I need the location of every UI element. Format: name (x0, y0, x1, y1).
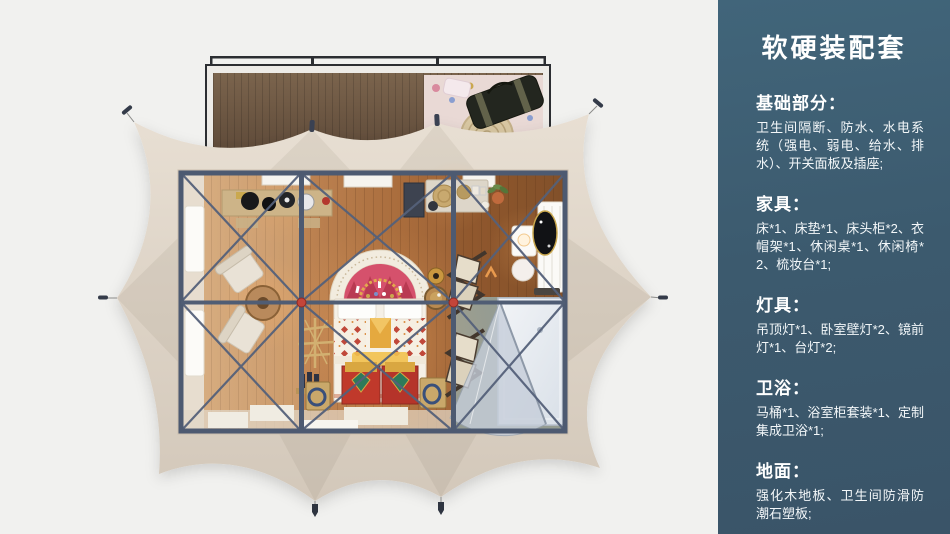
tent-stake-icon (658, 296, 668, 300)
spec-heading: 家具： (756, 190, 924, 215)
spec-body: 吊顶灯*1、卧室壁灯*2、镜前灯*1、台灯*2; (756, 321, 924, 357)
table-lamp-icon (518, 234, 530, 246)
spec-panel: 软硬装配套 基础部分： 卫生间隔断、防水、水电系统（强电、弱电、给水、排水）、开… (718, 0, 950, 534)
spec-body: 强化木地板、卫生间防滑防潮石塑板; (756, 487, 924, 523)
spec-body: 马桶*1、浴室柜套装*1、定制集成卫浴*1; (756, 404, 924, 440)
luggage-stand (420, 378, 446, 408)
painted-chests (342, 352, 418, 404)
floorplan-render (0, 0, 718, 534)
spec-heading: 卫浴： (756, 374, 924, 399)
spec-section-basics: 基础部分： 卫生间隔断、防水、水电系统（强电、弱电、给水、排水）、开关面板及插座… (756, 89, 924, 173)
hat-icon (241, 192, 259, 210)
spec-body: 床*1、床垫*1、床头柜*2、衣帽架*1、休闲桌*1、休闲椅*2、梳妆台*1; (756, 220, 924, 274)
spec-heading: 灯具： (756, 291, 924, 316)
panel-title: 软硬装配套 (718, 28, 950, 65)
tent-floorplan-illustration (0, 0, 718, 534)
spec-section-lighting: 灯具： 吊顶灯*1、卧室壁灯*2、镜前灯*1、台灯*2; (756, 291, 924, 357)
spec-section-furniture: 家具： 床*1、床垫*1、床头柜*2、衣帽架*1、休闲桌*1、休闲椅*2、梳妆台… (756, 190, 924, 274)
room (178, 160, 572, 455)
tent-stake-icon (98, 296, 108, 300)
spec-section-bathroom: 卫浴： 马桶*1、浴室柜套装*1、定制集成卫浴*1; (756, 374, 924, 440)
pillow (338, 302, 376, 319)
spec-heading: 地面： (756, 457, 924, 482)
vanity-mirror-icon (533, 211, 557, 255)
pillow (384, 302, 422, 319)
spec-sections: 基础部分： 卫生间隔断、防水、水电系统（强电、弱电、给水、排水）、开关面板及插座… (718, 65, 950, 523)
round-side-table (425, 287, 447, 309)
page: 软硬装配套 基础部分： 卫生间隔断、防水、水电系统（强电、弱电、给水、排水）、开… (0, 0, 950, 534)
frame-connector-node (297, 298, 306, 307)
spec-body: 卫生间隔断、防水、水电系统（强电、弱电、给水、排水）、开关面板及插座; (756, 119, 924, 173)
spec-section-flooring: 地面： 强化木地板、卫生间防滑防潮石塑板; (756, 457, 924, 523)
spec-heading: 基础部分： (756, 89, 924, 114)
luggage-stand (306, 382, 330, 410)
frame-connector-node (449, 298, 458, 307)
